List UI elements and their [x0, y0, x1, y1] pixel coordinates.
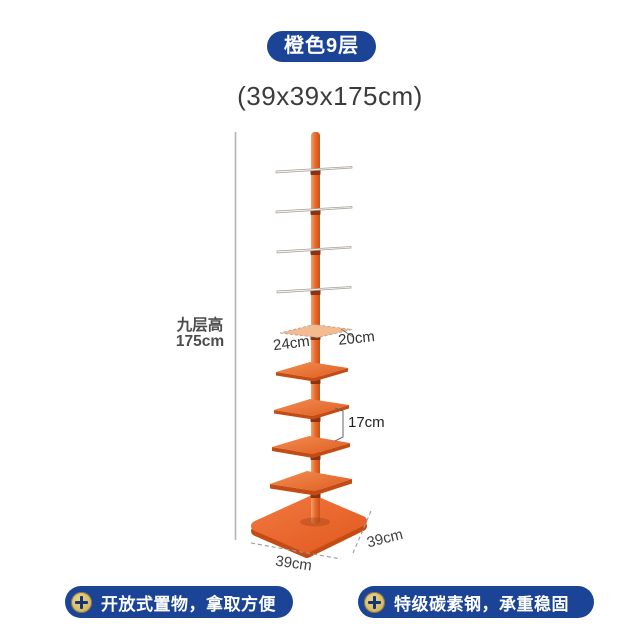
- plus-icon: [364, 592, 385, 613]
- plus-icon-bar: [373, 596, 376, 609]
- feature-banner-open-storage: 开放式置物，拿取方便: [65, 586, 293, 618]
- feature-banner-carbon-steel: 特级碳素钢，承重稳固: [358, 586, 594, 618]
- shelf-diagram: 九层高 175cm: [0, 0, 640, 640]
- shelf-width-label: 24cm: [272, 333, 310, 354]
- plus-icon-bar: [80, 596, 83, 609]
- shelf-tier-6: [276, 362, 348, 382]
- product-infographic: 橙色9层 (39x39x175cm) 九层高 175cm: [0, 0, 640, 640]
- base-plate: [256, 500, 362, 553]
- shelf-depth-label: 20cm: [337, 328, 375, 349]
- feature-text: 开放式置物，拿取方便: [101, 590, 276, 615]
- base-depth-label: 39cm: [365, 526, 405, 551]
- height-label-line2: 175cm: [176, 333, 224, 350]
- feature-text: 特级碳素钢，承重稳固: [394, 590, 569, 615]
- tier-gap-label: 17cm: [348, 414, 385, 431]
- height-label-line1: 九层高: [176, 315, 224, 334]
- tier-gap-bracket: [335, 408, 343, 441]
- shelf-tier-9: [270, 471, 352, 496]
- plus-icon: [71, 592, 92, 613]
- pole-foot-shadow: [300, 518, 330, 527]
